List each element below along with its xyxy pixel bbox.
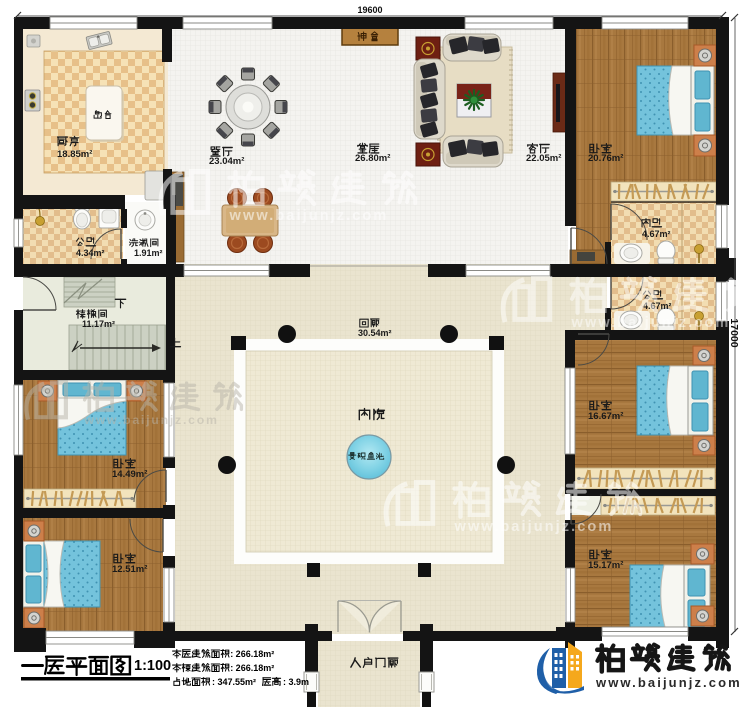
svg-text:www.baijunjz.com: www.baijunjz.com: [595, 675, 742, 690]
svg-text:www.baijunjz.com: www.baijunjz.com: [83, 413, 218, 427]
svg-text:4.67m²: 4.67m²: [642, 229, 671, 239]
svg-text:: 3.9m: : 3.9m: [283, 677, 309, 687]
svg-text:1.91m²: 1.91m²: [134, 248, 163, 258]
svg-text:11.17m²: 11.17m²: [82, 319, 115, 329]
svg-text:4.34m²: 4.34m²: [76, 248, 105, 258]
svg-text:www.baijunjz.com: www.baijunjz.com: [571, 315, 731, 331]
svg-text:15.17m²: 15.17m²: [588, 560, 623, 571]
svg-text:18.85m²: 18.85m²: [57, 149, 92, 160]
svg-text:22.05m²: 22.05m²: [526, 153, 561, 164]
svg-text:19600: 19600: [357, 5, 382, 15]
svg-text:16.67m²: 16.67m²: [588, 411, 623, 422]
svg-text:: 266.18m²: : 266.18m²: [230, 663, 274, 673]
svg-text:23.04m²: 23.04m²: [209, 156, 244, 167]
svg-text:: 347.55m²: : 347.55m²: [212, 677, 256, 687]
svg-text:: 266.18m²: : 266.18m²: [230, 649, 274, 659]
svg-text:1:100: 1:100: [134, 658, 171, 674]
svg-text:www.baijunjz.com: www.baijunjz.com: [454, 519, 614, 535]
svg-text:30.54m²: 30.54m²: [358, 328, 392, 338]
svg-text:14.49m²: 14.49m²: [112, 469, 147, 480]
svg-text:12.51m²: 12.51m²: [112, 564, 147, 575]
svg-text:26.80m²: 26.80m²: [355, 153, 390, 164]
svg-text:www.baijunjz.com: www.baijunjz.com: [229, 208, 389, 224]
svg-text:20.76m²: 20.76m²: [588, 153, 623, 164]
